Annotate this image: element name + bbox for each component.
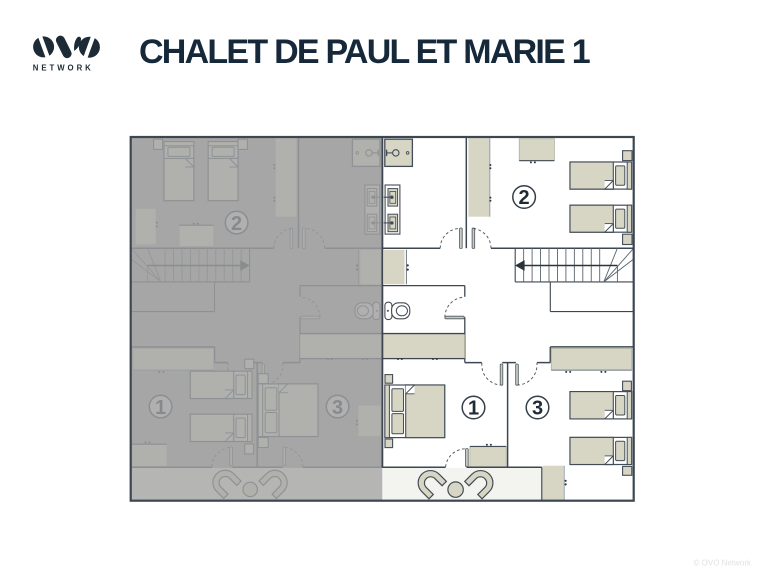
svg-text:© OVO Network: © OVO Network xyxy=(694,559,752,568)
svg-text:3: 3 xyxy=(332,397,343,419)
svg-text:1: 1 xyxy=(155,397,166,419)
svg-text:CHALET DE PAUL ET MARIE 1: CHALET DE PAUL ET MARIE 1 xyxy=(139,33,590,71)
svg-text:NETWORK: NETWORK xyxy=(33,63,94,72)
svg-text:2: 2 xyxy=(231,213,242,235)
svg-text:1: 1 xyxy=(468,398,479,420)
svg-text:3: 3 xyxy=(532,398,543,420)
svg-text:2: 2 xyxy=(519,187,530,209)
